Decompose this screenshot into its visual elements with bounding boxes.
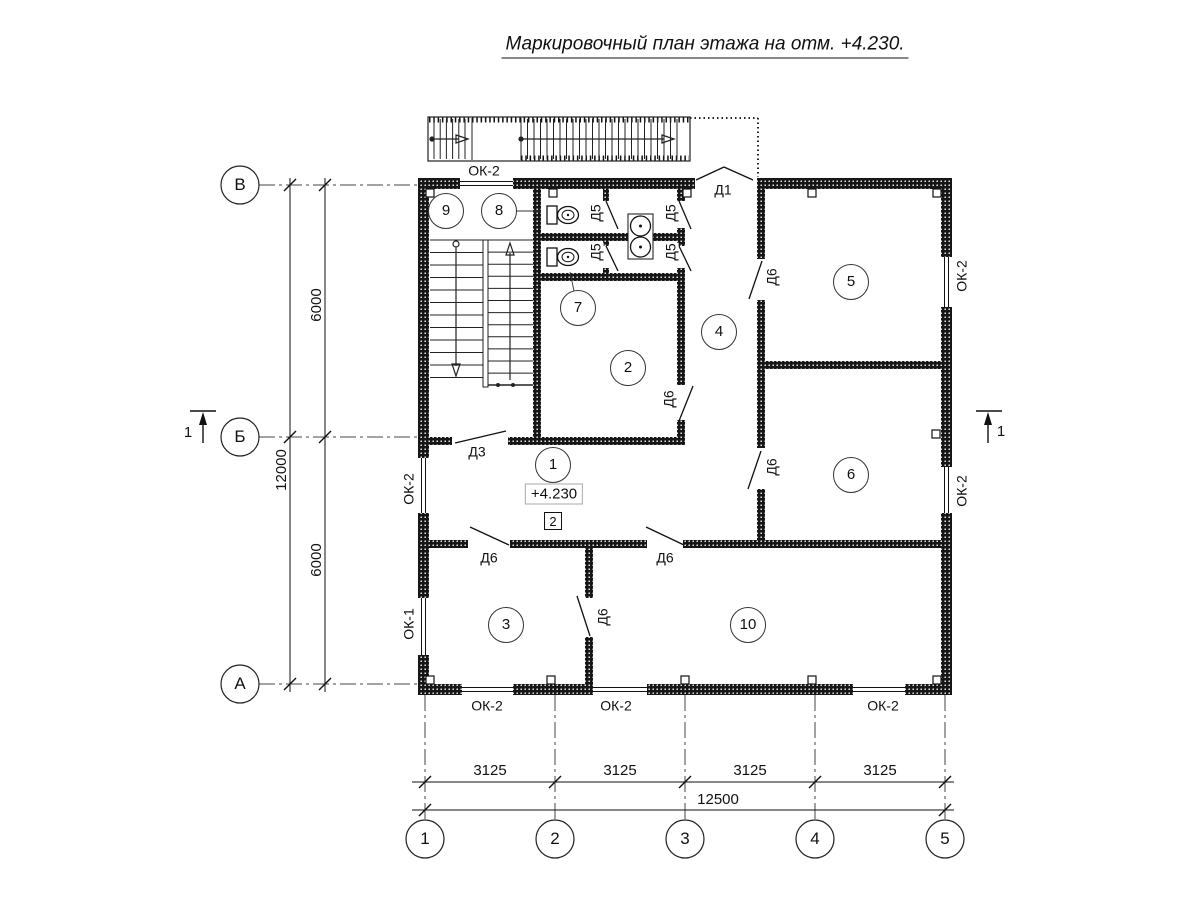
door-mark-d6-hall-left: Д6 [479, 551, 498, 566]
axis-label-3: 3 [679, 830, 690, 848]
room-label-7: 7 [573, 300, 583, 316]
floor-plan-page: Маркировочный план этажа на отм. +4.230.… [0, 0, 1200, 900]
window-mark-ok2-right-2: ОК-2 [955, 474, 970, 508]
dim-6000-top: 6000 [309, 287, 325, 322]
door-mark-d6-room3: Д6 [596, 607, 611, 626]
room-label-1: 1 [548, 457, 558, 473]
elevation-mark: +4.230 [525, 484, 583, 505]
window-mark-ok2-bottom-1: ОК-2 [470, 699, 504, 714]
dim-12500: 12500 [696, 792, 740, 808]
room-circles [429, 194, 869, 643]
dim-12000: 12000 [274, 448, 290, 492]
door-mark-d3: Д3 [467, 445, 486, 460]
window-mark-ok2-top: ОК-2 [467, 164, 501, 179]
axis-label-b: Б [233, 428, 246, 446]
window-mark-ok2-left: ОК-2 [402, 472, 417, 506]
plan-linework [0, 0, 1200, 900]
dim-3125-2: 3125 [602, 763, 637, 779]
section-mark-label-right: 1 [996, 424, 1006, 440]
room-label-3: 3 [501, 617, 511, 633]
axis-label-a: А [233, 675, 246, 693]
floor-flag: 2 [544, 512, 562, 530]
door-mark-d6-room5: Д6 [765, 267, 780, 286]
axis-label-v: В [233, 176, 246, 194]
window-mark-ok1-left: ОК-1 [402, 607, 417, 641]
room-label-4: 4 [714, 324, 724, 340]
section-mark-label-left: 1 [183, 425, 193, 441]
room-label-8: 8 [494, 203, 504, 219]
door-mark-d6-hall-right: Д6 [655, 551, 674, 566]
washbasin-fixtures [628, 214, 653, 259]
door-mark-d5-4: Д5 [664, 242, 679, 261]
room-label-10: 10 [739, 617, 758, 633]
dim-3125-3: 3125 [732, 763, 767, 779]
window-mark-ok2-right-1: ОК-2 [955, 259, 970, 293]
dim-3125-1: 3125 [472, 763, 507, 779]
door-mark-d5-1: Д5 [589, 203, 604, 222]
door-mark-d1: Д1 [713, 183, 732, 198]
axis-label-4: 4 [809, 830, 820, 848]
door-mark-d6-room2: Д6 [662, 389, 677, 408]
axis-label-1: 1 [419, 830, 430, 848]
door-mark-d5-2: Д5 [664, 203, 679, 222]
room-label-9: 9 [441, 203, 451, 219]
room-label-2: 2 [623, 360, 633, 376]
wc-fixture-lower [544, 245, 582, 270]
dim-6000-bottom: 6000 [309, 542, 325, 577]
door-mark-d6-room6: Д6 [765, 457, 780, 476]
room-label-6: 6 [846, 467, 856, 483]
axis-label-5: 5 [939, 830, 950, 848]
drawing-title: Маркировочный план этажа на отм. +4.230. [501, 34, 908, 59]
wc-fixture-upper [544, 203, 582, 228]
window-mark-ok2-bottom-2: ОК-2 [599, 699, 633, 714]
door-mark-d5-3: Д5 [589, 242, 604, 261]
axis-label-2: 2 [549, 830, 560, 848]
dim-3125-4: 3125 [862, 763, 897, 779]
room-label-5: 5 [846, 274, 856, 290]
window-mark-ok2-bottom-3: ОК-2 [866, 699, 900, 714]
